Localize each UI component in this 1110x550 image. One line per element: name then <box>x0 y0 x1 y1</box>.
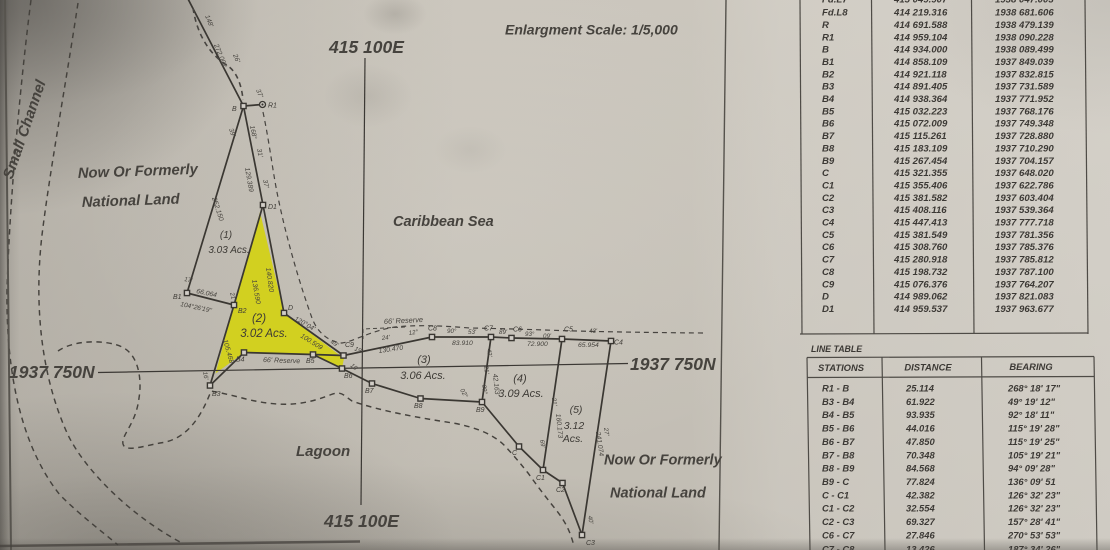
svg-text:415 280.918: 415 280.918 <box>893 255 948 266</box>
svg-text:21': 21' <box>482 364 490 375</box>
svg-text:414 891.405: 414 891.405 <box>893 82 948 93</box>
svg-text:Fd.L7: Fd.L7 <box>822 0 848 6</box>
svg-text:B7: B7 <box>822 131 835 142</box>
svg-text:C8: C8 <box>428 326 437 333</box>
svg-text:DISTANCE: DISTANCE <box>904 362 952 373</box>
svg-text:268° 18' 17": 268° 18' 17" <box>1007 383 1061 394</box>
svg-text:STATIONS: STATIONS <box>818 362 865 373</box>
svg-text:94° 09' 28": 94° 09' 28" <box>1008 463 1055 474</box>
svg-text:53': 53' <box>468 329 477 336</box>
svg-text:414 959.537: 414 959.537 <box>893 304 948 315</box>
svg-text:C6: C6 <box>513 327 522 334</box>
svg-text:C9: C9 <box>822 279 835 290</box>
svg-text:415 381.582: 415 381.582 <box>893 193 948 204</box>
svg-text:72.900: 72.900 <box>527 341 548 348</box>
svg-text:Enlargment Scale: 1/5,000: Enlargment Scale: 1/5,000 <box>505 22 678 38</box>
svg-text:44.016: 44.016 <box>905 423 935 434</box>
svg-text:415 408.116: 415 408.116 <box>893 205 947 216</box>
svg-text:69': 69' <box>538 439 546 449</box>
svg-text:3.02 Acs.: 3.02 Acs. <box>240 328 288 340</box>
svg-text:1938 479.139: 1938 479.139 <box>995 20 1054 31</box>
svg-text:415 072.009: 415 072.009 <box>893 119 948 130</box>
svg-text:415 308.760: 415 308.760 <box>893 242 948 253</box>
svg-text:B8: B8 <box>414 403 423 410</box>
svg-text:B6: B6 <box>344 373 353 380</box>
svg-text:26': 26' <box>231 52 241 64</box>
svg-text:42.382: 42.382 <box>905 489 935 500</box>
svg-text:C9: C9 <box>345 342 354 349</box>
svg-text:(4): (4) <box>513 373 527 385</box>
svg-text:415 115.261: 415 115.261 <box>893 131 947 142</box>
svg-text:B9: B9 <box>822 156 835 167</box>
svg-text:C7: C7 <box>822 255 835 266</box>
svg-text:414 938.364: 414 938.364 <box>893 94 948 105</box>
svg-text:93.935: 93.935 <box>906 409 935 420</box>
svg-text:1937 785.812: 1937 785.812 <box>995 255 1054 266</box>
svg-text:414 934.000: 414 934.000 <box>893 45 948 56</box>
svg-text:B6: B6 <box>822 119 835 130</box>
svg-text:89': 89' <box>499 329 508 336</box>
svg-text:414 858.109: 414 858.109 <box>893 57 948 68</box>
svg-text:(2): (2) <box>252 313 266 325</box>
svg-text:19': 19' <box>349 362 360 373</box>
svg-text:D1: D1 <box>268 204 277 211</box>
svg-text:C: C <box>822 168 830 179</box>
svg-text:115° 19' 28": 115° 19' 28" <box>1008 423 1060 434</box>
svg-text:1937 710.290: 1937 710.290 <box>995 143 1054 154</box>
svg-text:Small Channel: Small Channel <box>0 77 50 181</box>
svg-text:47.850: 47.850 <box>905 436 935 447</box>
svg-text:B5: B5 <box>822 106 835 117</box>
svg-text:13.426: 13.426 <box>906 544 935 550</box>
svg-text:B9: B9 <box>476 407 485 414</box>
svg-text:R1 - B: R1 - B <box>822 383 849 394</box>
svg-text:National Land: National Land <box>610 486 707 502</box>
svg-text:B4: B4 <box>822 94 835 105</box>
svg-text:43': 43' <box>589 328 598 335</box>
svg-text:31': 31' <box>255 148 264 159</box>
svg-text:1937 731.589: 1937 731.589 <box>995 82 1054 93</box>
svg-text:115° 19' 25": 115° 19' 25" <box>1008 436 1060 447</box>
svg-text:415 032.223: 415 032.223 <box>893 106 948 117</box>
svg-text:1937 749.348: 1937 749.348 <box>995 119 1054 130</box>
svg-text:83.910: 83.910 <box>452 340 473 347</box>
svg-text:3.06 Acs.: 3.06 Acs. <box>400 370 445 382</box>
svg-text:C2: C2 <box>822 193 835 204</box>
svg-text:C5: C5 <box>822 230 835 241</box>
svg-text:B3: B3 <box>822 82 835 93</box>
svg-text:157° 28' 41": 157° 28' 41" <box>1008 516 1061 527</box>
svg-text:C3: C3 <box>586 540 595 547</box>
svg-text:24': 24' <box>380 334 391 342</box>
svg-text:42': 42' <box>485 348 493 358</box>
svg-text:90°: 90° <box>447 328 457 335</box>
svg-text:27': 27' <box>602 426 610 437</box>
svg-text:C1: C1 <box>822 181 834 192</box>
svg-text:B: B <box>232 106 237 113</box>
svg-text:130.470: 130.470 <box>378 345 404 355</box>
svg-text:1937 963.677: 1937 963.677 <box>995 304 1054 315</box>
svg-text:415 447.413: 415 447.413 <box>893 218 948 229</box>
svg-text:C6: C6 <box>822 242 835 253</box>
svg-text:70.348: 70.348 <box>906 449 935 460</box>
svg-text:LINE TABLE: LINE TABLE <box>811 344 863 354</box>
svg-text:415 355.406: 415 355.406 <box>893 181 948 192</box>
svg-text:Fd.L8: Fd.L8 <box>822 8 848 19</box>
svg-text:414 219.316: 414 219.316 <box>893 8 948 19</box>
svg-text:414 959.104: 414 959.104 <box>893 32 948 43</box>
svg-text:B2: B2 <box>822 69 835 80</box>
svg-text:(3): (3) <box>417 354 431 366</box>
svg-text:C7: C7 <box>484 326 494 333</box>
svg-text:1937 750N: 1937 750N <box>630 354 716 374</box>
svg-text:1938 681.606: 1938 681.606 <box>995 8 1054 19</box>
svg-text:39': 39' <box>227 127 237 138</box>
svg-text:Acs.: Acs. <box>562 433 583 445</box>
svg-text:09': 09' <box>543 333 552 340</box>
svg-text:1938 089.499: 1938 089.499 <box>995 45 1054 56</box>
svg-text:92° 18' 11": 92° 18' 11" <box>1008 409 1055 420</box>
svg-text:415 049.907: 415 049.907 <box>893 0 948 6</box>
svg-text:09°: 09° <box>480 384 488 395</box>
svg-text:414 989.062: 414 989.062 <box>893 292 948 303</box>
svg-text:1937 764.207: 1937 764.207 <box>995 279 1054 290</box>
svg-text:B1: B1 <box>822 57 834 68</box>
svg-text:1938 090.228: 1938 090.228 <box>995 32 1054 43</box>
svg-text:Now Or Formerly: Now Or Formerly <box>78 162 199 182</box>
svg-text:272.002: 272.002 <box>212 42 228 69</box>
svg-text:93°: 93° <box>525 331 535 338</box>
svg-text:C6 - C7: C6 - C7 <box>822 529 855 540</box>
svg-text:Caribbean Sea: Caribbean Sea <box>393 214 494 230</box>
svg-text:25.114: 25.114 <box>905 383 935 394</box>
svg-text:1937 785.376: 1937 785.376 <box>995 242 1054 253</box>
svg-text:1937 787.100: 1937 787.100 <box>995 267 1054 278</box>
svg-text:105° 19' 21": 105° 19' 21" <box>1008 449 1061 460</box>
svg-text:1937 728.880: 1937 728.880 <box>995 131 1054 142</box>
svg-text:3.12: 3.12 <box>564 420 585 432</box>
svg-text:B2: B2 <box>238 308 247 315</box>
svg-text:1937 750N: 1937 750N <box>9 362 95 382</box>
svg-text:37': 37' <box>261 179 270 190</box>
svg-text:B: B <box>822 45 829 56</box>
svg-text:(1): (1) <box>220 230 232 241</box>
svg-text:D: D <box>288 305 293 312</box>
svg-text:1937 768.176: 1937 768.176 <box>995 106 1054 117</box>
svg-text:415 267.454: 415 267.454 <box>893 156 948 167</box>
svg-text:D: D <box>822 292 829 303</box>
svg-text:40': 40' <box>586 515 594 525</box>
svg-text:129.389: 129.389 <box>243 167 254 193</box>
svg-text:B3: B3 <box>212 391 221 398</box>
svg-text:C5: C5 <box>564 327 573 334</box>
svg-text:65.954: 65.954 <box>578 342 599 349</box>
svg-text:61.922: 61.922 <box>906 396 935 407</box>
svg-text:415 076.376: 415 076.376 <box>893 279 948 290</box>
svg-text:1937 622.786: 1937 622.786 <box>995 181 1054 192</box>
svg-text:C1 - C2: C1 - C2 <box>822 503 855 514</box>
svg-text:49° 19' 12": 49° 19' 12" <box>1007 396 1055 407</box>
svg-text:187° 34' 26": 187° 34' 26" <box>1008 544 1061 550</box>
svg-text:415 198.732: 415 198.732 <box>893 267 948 278</box>
svg-text:3.03 Acs.: 3.03 Acs. <box>208 245 249 256</box>
svg-text:1937 771.952: 1937 771.952 <box>995 94 1054 105</box>
svg-text:C8: C8 <box>822 267 835 278</box>
svg-text:148': 148' <box>203 14 214 29</box>
svg-text:37': 37' <box>254 88 264 99</box>
svg-text:136° 09' 51: 136° 09' 51 <box>1008 476 1056 487</box>
svg-text:C1: C1 <box>536 475 545 482</box>
svg-text:1937 849.039: 1937 849.039 <box>995 57 1054 68</box>
svg-text:414 691.588: 414 691.588 <box>893 20 948 31</box>
svg-text:12°: 12° <box>408 329 419 337</box>
svg-text:1937 777.718: 1937 777.718 <box>995 218 1054 229</box>
svg-text:21': 21' <box>550 396 558 407</box>
svg-text:Now Or Formerly: Now Or Formerly <box>604 453 723 469</box>
svg-text:69.327: 69.327 <box>906 516 935 527</box>
svg-text:B7 - B8: B7 - B8 <box>822 449 855 460</box>
svg-text:415 183.109: 415 183.109 <box>893 143 948 154</box>
svg-text:17': 17' <box>184 276 194 284</box>
svg-text:B5: B5 <box>306 358 315 365</box>
svg-text:C - C1: C - C1 <box>822 489 849 500</box>
svg-text:D1: D1 <box>822 304 834 315</box>
svg-text:16': 16' <box>201 371 209 381</box>
svg-text:B6 - B7: B6 - B7 <box>822 436 855 447</box>
svg-text:B1: B1 <box>173 294 182 301</box>
svg-text:B7: B7 <box>365 388 375 395</box>
svg-text:R1: R1 <box>822 32 834 43</box>
svg-text:C3: C3 <box>822 205 835 216</box>
svg-text:1937 821.083: 1937 821.083 <box>995 292 1054 303</box>
svg-text:126° 32' 23": 126° 32' 23" <box>1008 489 1061 500</box>
svg-text:1938 047.003: 1938 047.003 <box>995 0 1054 6</box>
svg-text:B5 - B6: B5 - B6 <box>822 423 855 434</box>
svg-text:84.568: 84.568 <box>906 463 935 474</box>
svg-text:B9 - C: B9 - C <box>822 476 849 487</box>
svg-text:C2: C2 <box>556 487 565 494</box>
svg-text:1937 648.020: 1937 648.020 <box>995 168 1054 179</box>
svg-text:1937 781.356: 1937 781.356 <box>995 230 1054 241</box>
svg-text:C4: C4 <box>822 218 835 229</box>
svg-text:66' Reserve: 66' Reserve <box>384 315 424 326</box>
svg-text:27.846: 27.846 <box>905 529 935 540</box>
svg-text:1937 704.157: 1937 704.157 <box>995 156 1054 167</box>
svg-text:415 100E: 415 100E <box>328 37 405 57</box>
svg-text:32.554: 32.554 <box>906 503 935 514</box>
svg-text:National Land: National Land <box>82 192 181 211</box>
svg-text:66' Reserve: 66' Reserve <box>263 357 300 365</box>
svg-text:B4: B4 <box>236 357 245 364</box>
svg-text:415 100E: 415 100E <box>323 511 400 531</box>
svg-text:R: R <box>822 20 829 31</box>
svg-text:02°: 02° <box>458 388 469 400</box>
svg-text:B4 - B5: B4 - B5 <box>822 409 855 420</box>
svg-text:B8 - B9: B8 - B9 <box>822 463 855 474</box>
svg-text:(5): (5) <box>570 404 583 416</box>
svg-text:BEARING: BEARING <box>1009 361 1052 372</box>
svg-text:Lagoon: Lagoon <box>296 443 350 460</box>
svg-text:C4: C4 <box>614 340 623 347</box>
svg-text:1937 603.404: 1937 603.404 <box>995 193 1054 204</box>
svg-text:3.09 Acs.: 3.09 Acs. <box>498 388 543 400</box>
svg-text:414 921.118: 414 921.118 <box>893 69 947 80</box>
svg-text:126° 32' 23": 126° 32' 23" <box>1008 503 1061 514</box>
svg-text:1937 539.364: 1937 539.364 <box>995 205 1054 216</box>
svg-text:C2 - C3: C2 - C3 <box>822 516 855 527</box>
svg-text:415 381.549: 415 381.549 <box>893 230 948 241</box>
svg-text:B3 - B4: B3 - B4 <box>822 396 855 407</box>
svg-text:415 321.355: 415 321.355 <box>893 168 948 179</box>
svg-text:270° 53' 53": 270° 53' 53" <box>1007 529 1061 540</box>
svg-text:B8: B8 <box>822 143 835 154</box>
svg-text:77.824: 77.824 <box>906 476 935 487</box>
svg-text:R1: R1 <box>268 103 277 110</box>
svg-text:C: C <box>512 450 518 457</box>
svg-text:1937 832.815: 1937 832.815 <box>995 69 1054 80</box>
svg-text:C7 - C8: C7 - C8 <box>822 544 855 550</box>
svg-text:49': 49' <box>329 339 340 350</box>
svg-text:104°26'19": 104°26'19" <box>180 300 214 315</box>
